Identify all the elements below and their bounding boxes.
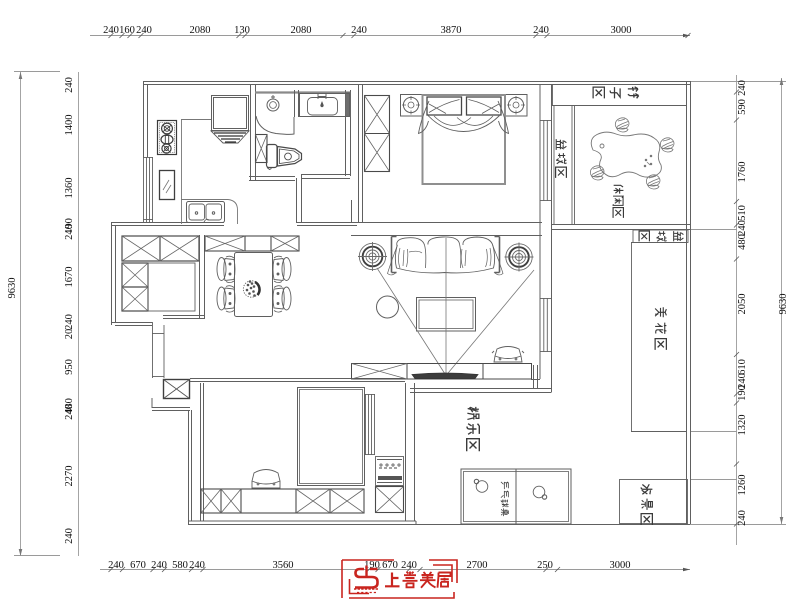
svg-text:670: 670 bbox=[130, 560, 146, 571]
svg-text:2050: 2050 bbox=[737, 294, 748, 315]
svg-text:240: 240 bbox=[64, 528, 75, 544]
svg-text:190: 190 bbox=[737, 385, 748, 401]
svg-text:580: 580 bbox=[172, 560, 188, 571]
svg-text:250: 250 bbox=[537, 560, 553, 571]
svg-text:240: 240 bbox=[64, 77, 75, 93]
svg-text:240: 240 bbox=[151, 560, 167, 571]
svg-text:590: 590 bbox=[737, 99, 748, 115]
svg-text:240: 240 bbox=[737, 220, 748, 236]
svg-text:3870: 3870 bbox=[441, 25, 462, 36]
svg-text:1400: 1400 bbox=[64, 115, 75, 136]
svg-text:240: 240 bbox=[64, 224, 75, 240]
svg-text:240: 240 bbox=[64, 404, 75, 420]
svg-text:240: 240 bbox=[737, 510, 748, 526]
svg-text:9630: 9630 bbox=[7, 278, 18, 299]
svg-text:20: 20 bbox=[64, 329, 75, 340]
svg-text:1670: 1670 bbox=[64, 267, 75, 288]
svg-text:2270: 2270 bbox=[64, 466, 75, 487]
svg-text:610: 610 bbox=[737, 359, 748, 375]
svg-text:240: 240 bbox=[103, 25, 119, 36]
svg-text:9630: 9630 bbox=[778, 294, 789, 315]
svg-text:510: 510 bbox=[737, 205, 748, 221]
svg-text:480: 480 bbox=[737, 234, 748, 250]
svg-text:3000: 3000 bbox=[611, 25, 632, 36]
svg-text:240: 240 bbox=[136, 25, 152, 36]
svg-text:3560: 3560 bbox=[273, 560, 294, 571]
svg-text:240: 240 bbox=[108, 560, 124, 571]
svg-text:950: 950 bbox=[64, 359, 75, 375]
svg-text:2080: 2080 bbox=[190, 25, 211, 36]
svg-text:240: 240 bbox=[64, 314, 75, 330]
svg-text:160: 160 bbox=[119, 25, 135, 36]
svg-text:1320: 1320 bbox=[737, 415, 748, 436]
svg-text:3000: 3000 bbox=[610, 560, 631, 571]
svg-text:670: 670 bbox=[382, 560, 398, 571]
svg-text:240: 240 bbox=[189, 560, 205, 571]
svg-text:1260: 1260 bbox=[737, 475, 748, 496]
svg-text:240: 240 bbox=[401, 560, 417, 571]
svg-text:240: 240 bbox=[737, 80, 748, 96]
svg-text:2700: 2700 bbox=[467, 560, 488, 571]
svg-text:130: 130 bbox=[234, 25, 250, 36]
svg-text:240: 240 bbox=[351, 25, 367, 36]
svg-text:240: 240 bbox=[533, 25, 549, 36]
svg-text:1760: 1760 bbox=[737, 162, 748, 183]
svg-text:2080: 2080 bbox=[291, 25, 312, 36]
svg-text:1360: 1360 bbox=[64, 178, 75, 199]
